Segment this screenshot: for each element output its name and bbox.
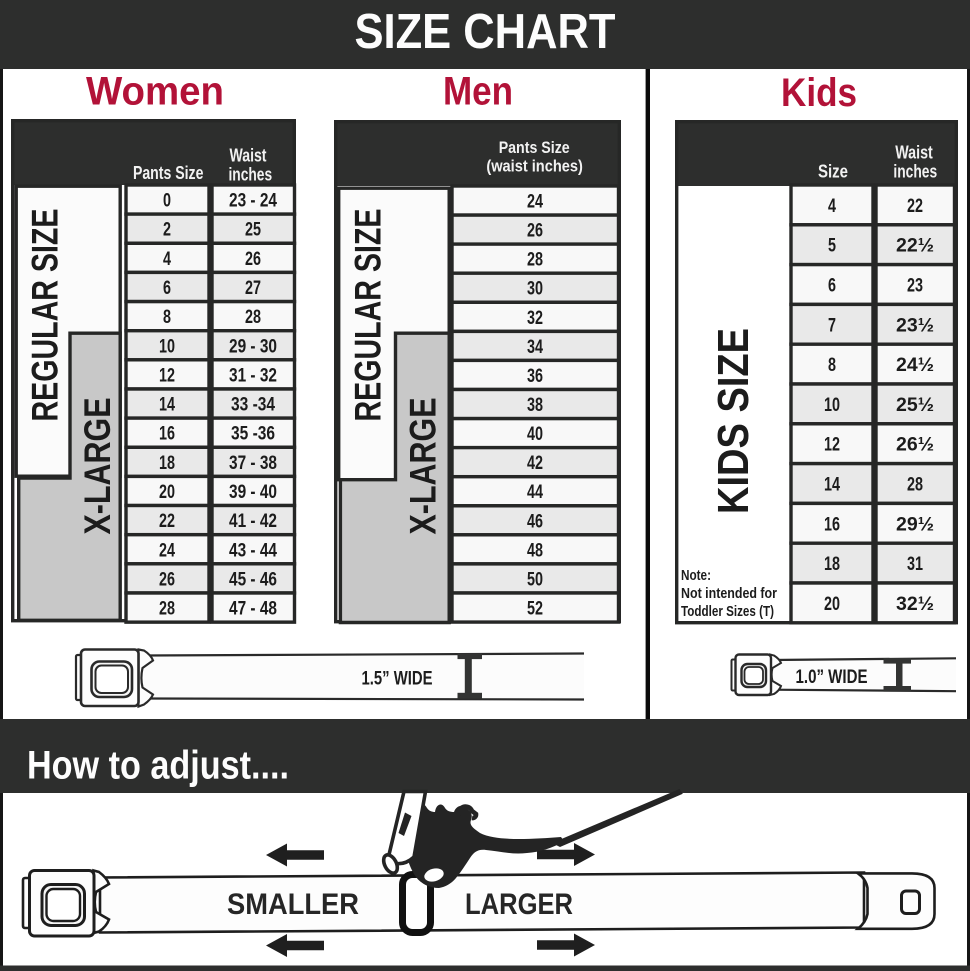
svg-text:38: 38 <box>527 394 543 416</box>
svg-text:25: 25 <box>245 219 261 241</box>
svg-text:42: 42 <box>527 452 543 474</box>
svg-text:How to adjust....: How to adjust.... <box>27 744 289 788</box>
svg-text:37 - 38: 37 - 38 <box>229 452 277 474</box>
svg-text:16: 16 <box>159 423 175 445</box>
svg-text:40: 40 <box>527 423 543 445</box>
svg-text:2: 2 <box>163 219 171 241</box>
svg-text:52: 52 <box>527 598 543 620</box>
svg-text:1.0” WIDE: 1.0” WIDE <box>796 666 868 688</box>
svg-text:7: 7 <box>828 314 836 336</box>
svg-text:23½: 23½ <box>896 314 934 336</box>
svg-text:X-LARGE: X-LARGE <box>77 398 118 535</box>
svg-text:39 - 40: 39 - 40 <box>229 481 277 503</box>
svg-text:25½: 25½ <box>896 394 934 416</box>
svg-text:33 -34: 33 -34 <box>231 394 275 416</box>
svg-text:Waist: Waist <box>895 142 933 162</box>
svg-text:36: 36 <box>527 365 543 387</box>
svg-text:26: 26 <box>245 248 261 270</box>
svg-text:24: 24 <box>527 191 543 213</box>
svg-text:48: 48 <box>527 539 543 561</box>
svg-text:Note:: Note: <box>681 567 711 584</box>
svg-text:Men: Men <box>443 70 513 114</box>
svg-text:18: 18 <box>159 452 175 474</box>
svg-text:SMALLER: SMALLER <box>227 888 359 921</box>
svg-text:29 - 30: 29 - 30 <box>229 335 277 357</box>
svg-text:27: 27 <box>245 277 261 299</box>
svg-text:Kids: Kids <box>781 71 857 115</box>
svg-text:REGULAR SIZE: REGULAR SIZE <box>348 209 389 422</box>
svg-text:28: 28 <box>527 249 543 271</box>
svg-text:20: 20 <box>824 593 840 615</box>
svg-text:16: 16 <box>824 513 840 535</box>
svg-text:(waist inches): (waist inches) <box>486 157 583 176</box>
svg-text:29½: 29½ <box>896 513 934 535</box>
svg-text:23: 23 <box>907 275 923 297</box>
svg-text:14: 14 <box>824 474 840 496</box>
svg-text:31: 31 <box>907 553 923 575</box>
svg-text:10: 10 <box>824 394 840 416</box>
svg-text:6: 6 <box>163 277 171 299</box>
svg-text:Not intended for: Not intended for <box>681 585 777 602</box>
svg-text:47 - 48: 47 - 48 <box>229 598 277 620</box>
svg-text:31 - 32: 31 - 32 <box>229 364 277 386</box>
svg-text:28: 28 <box>159 598 175 620</box>
svg-text:REGULAR SIZE: REGULAR SIZE <box>25 209 66 422</box>
svg-text:X-LARGE: X-LARGE <box>403 398 444 535</box>
svg-text:34: 34 <box>527 336 543 358</box>
svg-text:4: 4 <box>828 195 836 217</box>
svg-text:Women: Women <box>86 70 224 114</box>
svg-text:inches: inches <box>893 162 937 182</box>
svg-text:28: 28 <box>245 306 261 328</box>
svg-text:35 -36: 35 -36 <box>231 423 275 445</box>
svg-text:LARGER: LARGER <box>465 888 573 921</box>
svg-text:Toddler Sizes (T): Toddler Sizes (T) <box>681 603 774 620</box>
svg-text:Pants Size: Pants Size <box>133 163 204 183</box>
svg-text:8: 8 <box>163 306 171 328</box>
svg-text:4: 4 <box>163 248 171 270</box>
svg-text:SIZE CHART: SIZE CHART <box>355 4 616 59</box>
svg-text:32½: 32½ <box>896 593 934 615</box>
svg-text:45 - 46: 45 - 46 <box>229 568 277 590</box>
svg-text:inches: inches <box>228 165 272 185</box>
svg-text:22: 22 <box>159 510 175 532</box>
svg-text:32: 32 <box>527 307 543 329</box>
svg-text:23 - 24: 23 - 24 <box>229 190 277 212</box>
svg-text:26: 26 <box>159 568 175 590</box>
svg-text:6: 6 <box>828 275 836 297</box>
svg-text:26: 26 <box>527 220 543 242</box>
svg-text:24½: 24½ <box>896 354 934 376</box>
svg-text:8: 8 <box>828 354 836 376</box>
svg-text:46: 46 <box>527 510 543 532</box>
svg-text:12: 12 <box>824 434 840 456</box>
svg-text:10: 10 <box>159 335 175 357</box>
svg-text:12: 12 <box>159 364 175 386</box>
svg-text:1.5” WIDE: 1.5” WIDE <box>362 668 433 690</box>
svg-text:22½: 22½ <box>896 235 934 257</box>
svg-text:Pants Size: Pants Size <box>499 138 570 157</box>
svg-text:Size: Size <box>818 162 848 182</box>
svg-text:5: 5 <box>828 235 836 257</box>
svg-text:24: 24 <box>159 539 175 561</box>
svg-text:44: 44 <box>527 481 543 503</box>
svg-text:41 - 42: 41 - 42 <box>229 510 277 532</box>
svg-text:20: 20 <box>159 481 175 503</box>
svg-text:22: 22 <box>907 195 923 217</box>
svg-text:30: 30 <box>527 278 543 300</box>
svg-text:14: 14 <box>159 394 175 416</box>
svg-text:50: 50 <box>527 568 543 590</box>
svg-text:0: 0 <box>163 190 171 212</box>
svg-text:28: 28 <box>907 474 923 496</box>
svg-text:KIDS SIZE: KIDS SIZE <box>709 328 758 514</box>
svg-text:26½: 26½ <box>896 434 934 456</box>
svg-text:43 - 44: 43 - 44 <box>229 539 277 561</box>
svg-text:Waist: Waist <box>230 145 267 165</box>
svg-text:18: 18 <box>824 553 840 575</box>
